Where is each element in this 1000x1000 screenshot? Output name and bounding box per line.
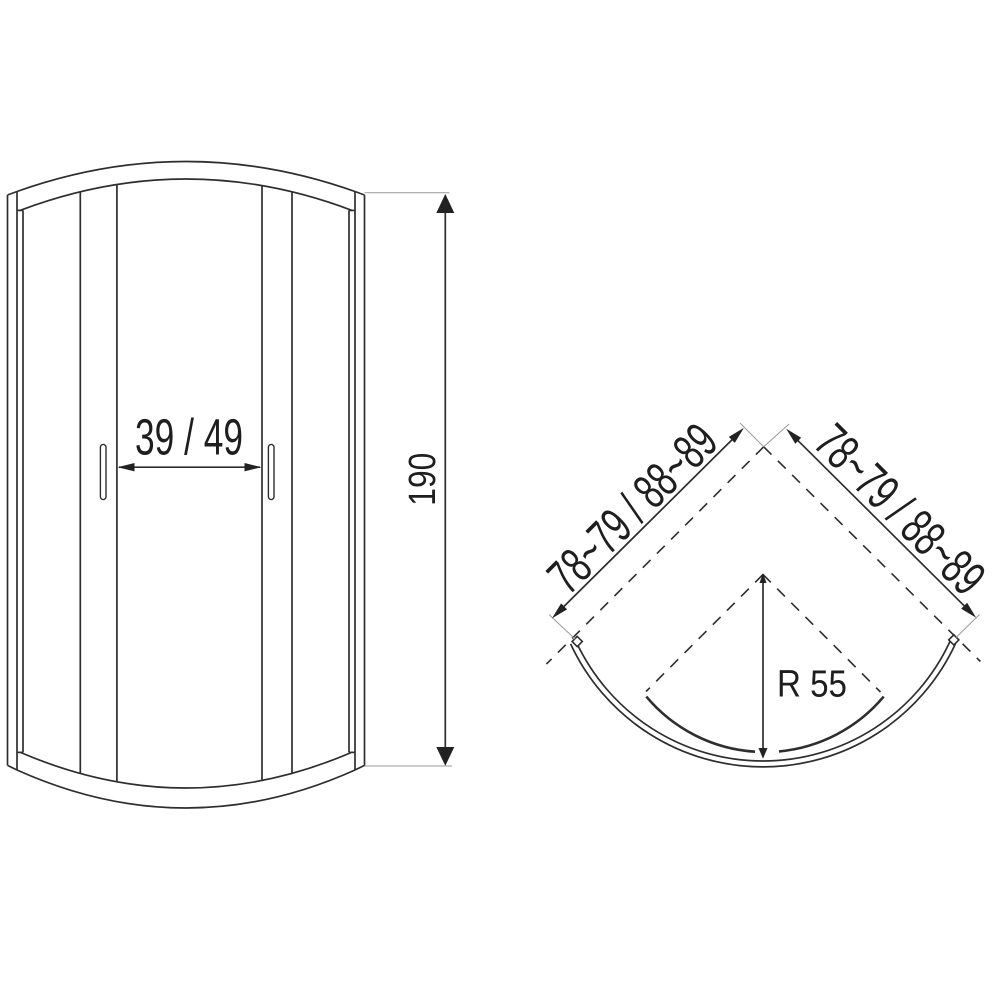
svg-text:R 55: R 55	[777, 663, 847, 705]
svg-text:190: 190	[402, 453, 444, 506]
svg-text:39 / 49: 39 / 49	[135, 409, 243, 466]
